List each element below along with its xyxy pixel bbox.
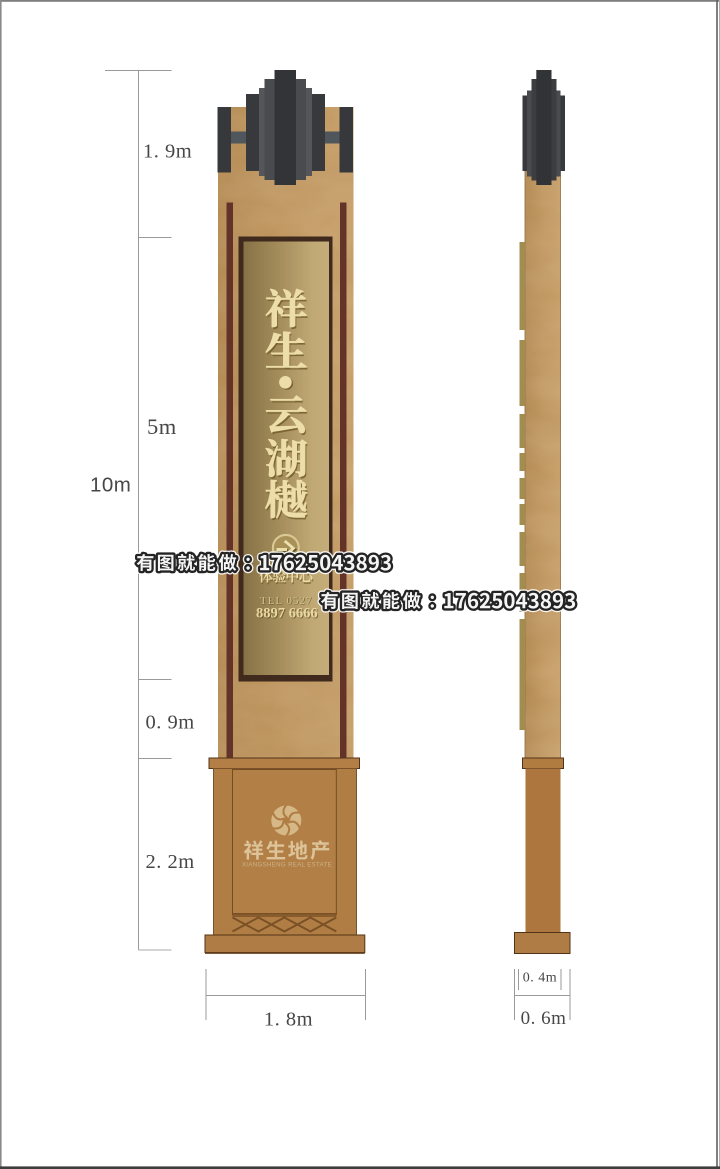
svg-text:1. 8m: 1. 8m	[264, 1009, 313, 1031]
svg-text:10m: 10m	[90, 474, 131, 497]
svg-text:2. 2m: 2. 2m	[146, 851, 195, 873]
svg-text:XIANGSHENG REAL ESTATE: XIANGSHENG REAL ESTATE	[242, 862, 332, 869]
svg-text:5m: 5m	[147, 414, 177, 439]
svg-text:0. 9m: 0. 9m	[146, 712, 195, 734]
svg-text:0. 6m: 0. 6m	[521, 1008, 567, 1029]
svg-text:0. 4m: 0. 4m	[523, 971, 557, 986]
svg-text:8897 6666: 8897 6666	[256, 605, 318, 621]
svg-text:1. 9m: 1. 9m	[143, 141, 192, 163]
